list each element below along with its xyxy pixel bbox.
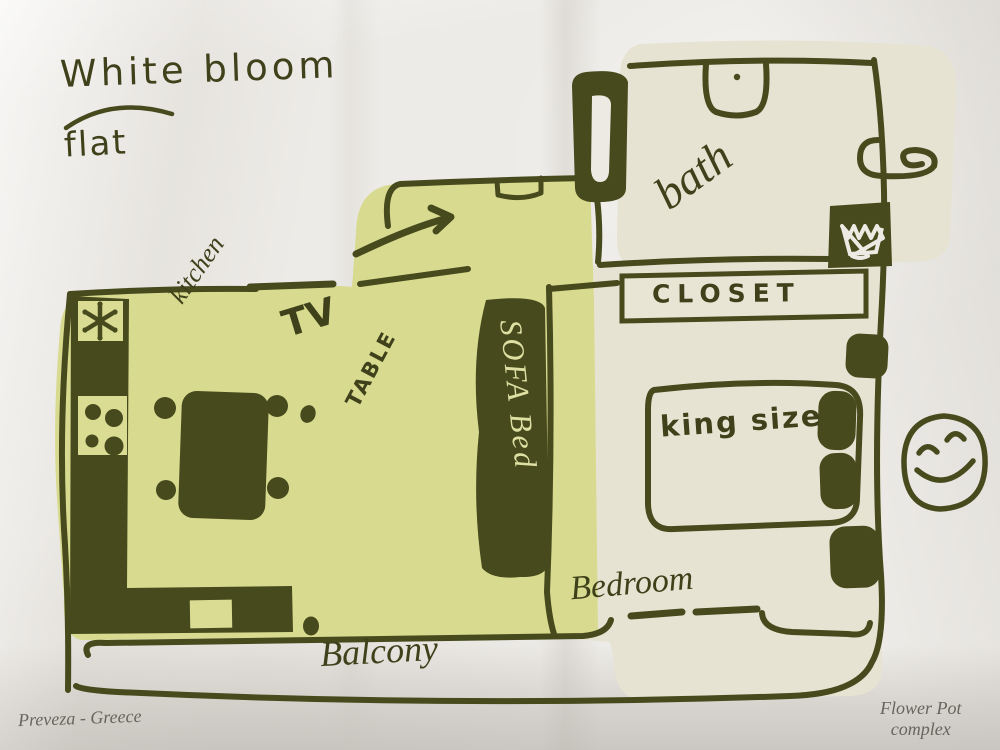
balcony-door-dash-1 (631, 612, 682, 616)
chair (303, 617, 319, 636)
closet-label: CLOSET (652, 278, 801, 308)
chair (267, 477, 289, 499)
bath-left-wall (597, 198, 599, 262)
counter-sink (190, 600, 232, 629)
nightstand-bottom (829, 525, 881, 589)
complex-caption: Flower Pot complex (880, 698, 962, 740)
chair (156, 480, 176, 500)
washing-machine-icon (828, 202, 892, 268)
pillow (817, 390, 857, 450)
flat-title-line2: flat (63, 122, 129, 165)
location-caption: Preveza - Greece (18, 706, 142, 731)
entry-door-icon (572, 71, 628, 202)
chair (266, 395, 288, 417)
balcony-door-dash-2 (696, 609, 757, 612)
chair (154, 397, 176, 419)
tv-wall-line (250, 284, 333, 287)
pillow (819, 452, 858, 509)
complex-caption-line2: complex (880, 719, 962, 740)
nightstand-top (845, 333, 889, 379)
smiley-face-icon (904, 416, 985, 509)
complex-caption-line1: Flower Pot (880, 698, 962, 719)
balcony-label: Balcony (319, 627, 439, 675)
